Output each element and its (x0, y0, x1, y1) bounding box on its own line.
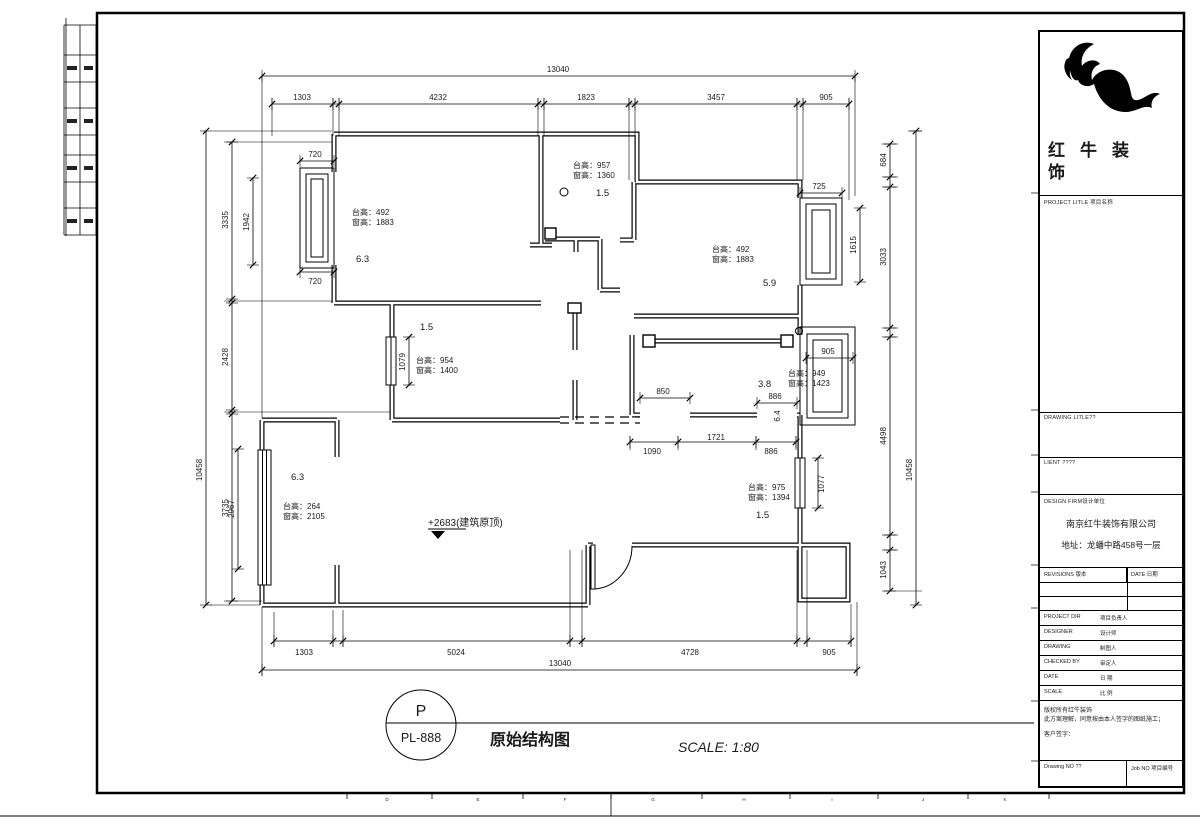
title-block-ticks (1031, 193, 1038, 761)
drawing-stamp: P PL-888 原始结构图 SCALE: 1:80 (386, 690, 1034, 760)
dim-1721: 1721 (707, 433, 725, 442)
dim-right-overall: 10458 (905, 458, 914, 481)
dim-left-seg: 2428 (221, 348, 230, 366)
dim-bottom-seg: 905 (822, 648, 836, 657)
dim-bay: 1615 (849, 236, 858, 254)
revisions-table: REVISIONS 版本 DATE 日期 (1040, 567, 1182, 610)
room-window-height: 窗高：1394 (748, 492, 790, 502)
dim-window: 1942 (242, 213, 251, 231)
room-window-height: 窗高：2105 (283, 511, 325, 521)
scale-label: SCALE (1044, 689, 1062, 695)
dim-850: 850 (656, 387, 670, 396)
dim-886: 886 (764, 447, 778, 456)
dim-top-seg: 4232 (429, 93, 447, 102)
room-sill-height: 台高：264 (283, 501, 321, 511)
stamp-letter: P (416, 703, 427, 720)
dim-725: 725 (812, 182, 826, 191)
grid-letter: E (476, 797, 479, 802)
room-sill-height: 台高：957 (573, 160, 611, 170)
room-sill-height: 台高：954 (416, 355, 454, 365)
dim-right-seg: 3033 (879, 248, 888, 266)
client-label: LIENT ???? (1044, 460, 1075, 466)
room-number: 6.4 (773, 410, 782, 422)
dim-1079: 1079 (398, 353, 407, 371)
room-window-height: 窗高：1360 (573, 170, 615, 180)
dim-right-seg: 4498 (879, 427, 888, 445)
room-window-height: 窗高：1400 (416, 365, 458, 375)
dim-top-seg: 3457 (707, 93, 725, 102)
removed-wall-dashed (560, 417, 640, 423)
client-row: LIENT ???? (1040, 457, 1182, 494)
room-sill-height: 台高：492 (352, 207, 390, 217)
dim-bottom-seg: 4728 (681, 648, 699, 657)
room-window-height: 窗高：1883 (352, 217, 394, 227)
date-cn: 日 期 (1100, 674, 1113, 682)
design-firm-label: DESIGN FIRM设计单位 (1044, 497, 1105, 505)
project-title-row: PROJECT LITLE 项目名称 (1040, 195, 1182, 412)
dim-720: 720 (308, 150, 322, 159)
date-label: DATE (1044, 674, 1058, 680)
room-number: 1.5 (756, 510, 769, 521)
redbull-logo-icon (1040, 32, 1182, 132)
checked-by-cn: 审定人 (1100, 659, 1117, 667)
entry-door (591, 545, 632, 589)
dim-right-seg: 1043 (879, 561, 888, 579)
grid-letter: F (564, 797, 567, 802)
copyright-line2: 此方案理解，同意按由本人签字的图纸施工； (1044, 714, 1164, 723)
revisions-date-header: DATE 日期 (1127, 568, 1182, 583)
logo-panel: 红牛装 饰 (1040, 32, 1182, 195)
room-number: 3.8 (758, 379, 771, 390)
checked-by-label: CHECKED BY (1044, 659, 1080, 665)
designer-row: DESIGNER 设计师 (1040, 625, 1182, 640)
grid-letter: D (385, 797, 389, 802)
project-title-label: PROJECT LITLE 项目名称 (1044, 198, 1113, 206)
drawing-no-label: Drawing NO ?? (1040, 761, 1127, 788)
checked-by-row: CHECKED BY 审定人 (1040, 655, 1182, 670)
room-window-height: 窗高：1883 (712, 254, 754, 264)
scale-cn: 比 例 (1100, 689, 1113, 697)
dimension-texts: 13040 1303 4232 1823 3457 905 1303 5024 … (195, 65, 914, 668)
drawing-title-row: DRAWING LITLE?? (1040, 412, 1182, 457)
dim-top-seg: 905 (819, 93, 833, 102)
dim-1077: 1077 (817, 475, 826, 493)
dim-window: 2967 (227, 500, 236, 518)
copyright-line1: 版权所有红牛装饰 (1044, 705, 1092, 714)
brand-name-line2: 饰 (1048, 158, 1065, 183)
grid-ruler: D E F G H I J K (347, 793, 1049, 802)
room-window-height: 窗高：1423 (788, 378, 830, 388)
level-mark (428, 529, 466, 539)
firm-address: 地址：龙蟠中路458号一层 (1040, 539, 1182, 551)
designer-label: DESIGNER (1044, 629, 1073, 635)
drawing-by-label: DRAWING (1044, 644, 1070, 650)
date-row: DATE 日 期 (1040, 670, 1182, 685)
drawing-sheet: 13040 1303 4232 1823 3457 905 1303 5024 … (0, 0, 1200, 824)
columns (545, 228, 793, 347)
grid-letter: H (742, 797, 745, 802)
room-number: 6.3 (291, 472, 304, 483)
revisions-divider (1127, 568, 1128, 610)
room-sill-height: 台高：975 (748, 482, 786, 492)
project-dir-label: PROJECT DIR (1044, 614, 1081, 620)
room-sill-height: 台高：949 (788, 368, 826, 378)
copyright-row: 版权所有红牛装饰 此方案理解，同意按由本人签字的图纸施工； 客户签字： (1040, 700, 1182, 760)
designer-cn: 设计师 (1100, 629, 1117, 637)
edge-stamp-table (64, 25, 96, 235)
dim-1090: 1090 (643, 447, 661, 456)
stamp-code: PL-888 (401, 731, 441, 745)
drawing-number-row: Drawing NO ?? Job NO 项目编号 (1040, 760, 1182, 788)
design-firm-row: DESIGN FIRM设计单位 南京红牛装饰有限公司 地址：龙蟠中路458号一层 (1040, 494, 1182, 567)
dim-top-seg: 1823 (577, 93, 595, 102)
grid-letter: K (1003, 797, 1006, 802)
stamp-scale: SCALE: 1:80 (678, 739, 759, 755)
grid-letter: I (831, 797, 832, 802)
dim-886: 886 (768, 392, 782, 401)
ceiling-level-label: +2683(建筑原顶) (428, 516, 503, 529)
revisions-header: REVISIONS 版本 (1040, 568, 1127, 583)
dim-top-overall: 13040 (547, 65, 570, 74)
floor-plan-canvas: 13040 1303 4232 1823 3457 905 1303 5024 … (0, 0, 1200, 824)
title-block: 红牛装 饰 PROJECT LITLE 项目名称 DRAWING LITLE??… (1038, 30, 1184, 788)
dim-left-overall: 10458 (195, 458, 204, 481)
revisions-row-line (1040, 596, 1182, 597)
project-dir-cn: 项目负责人 (1100, 614, 1128, 622)
project-dir-row: PROJECT DIR 项目负责人 (1040, 610, 1182, 625)
dim-bottom-seg: 5024 (447, 648, 465, 657)
dim-905: 905 (821, 347, 835, 356)
scale-row: SCALE 比 例 (1040, 685, 1182, 700)
dim-top-seg: 1303 (293, 93, 311, 102)
drawing-title-label: DRAWING LITLE?? (1044, 415, 1096, 421)
dim-720: 720 (308, 277, 322, 286)
room-annotations: 台高：492 窗高：1883 6.3 台高：957 窗高：1360 1.5 台高… (283, 160, 830, 529)
drawing-by-cn: 制图人 (1100, 644, 1117, 652)
grid-letter: J (922, 797, 924, 802)
room-number: 5.9 (763, 278, 776, 289)
drawing-by-row: DRAWING 制图人 (1040, 640, 1182, 655)
copyright-line3: 客户签字： (1044, 729, 1074, 738)
dim-bottom-overall: 13040 (549, 659, 572, 668)
dim-left-seg: 3335 (221, 211, 230, 229)
firm-name: 南京红牛装饰有限公司 (1040, 517, 1182, 530)
room-number: 1.5 (420, 322, 433, 333)
stamp-title: 原始结构图 (490, 730, 570, 749)
job-no-label: Job NO 项目编号 (1127, 761, 1182, 788)
drain-symbol (560, 188, 568, 196)
room-sill-height: 台高：492 (712, 244, 750, 254)
dim-bottom-seg: 1303 (295, 648, 313, 657)
room-number: 1.5 (596, 188, 609, 199)
walls-group (262, 134, 848, 605)
dim-right-seg: 684 (879, 153, 888, 167)
room-number: 6.3 (356, 254, 369, 265)
grid-letter: G (651, 797, 655, 802)
